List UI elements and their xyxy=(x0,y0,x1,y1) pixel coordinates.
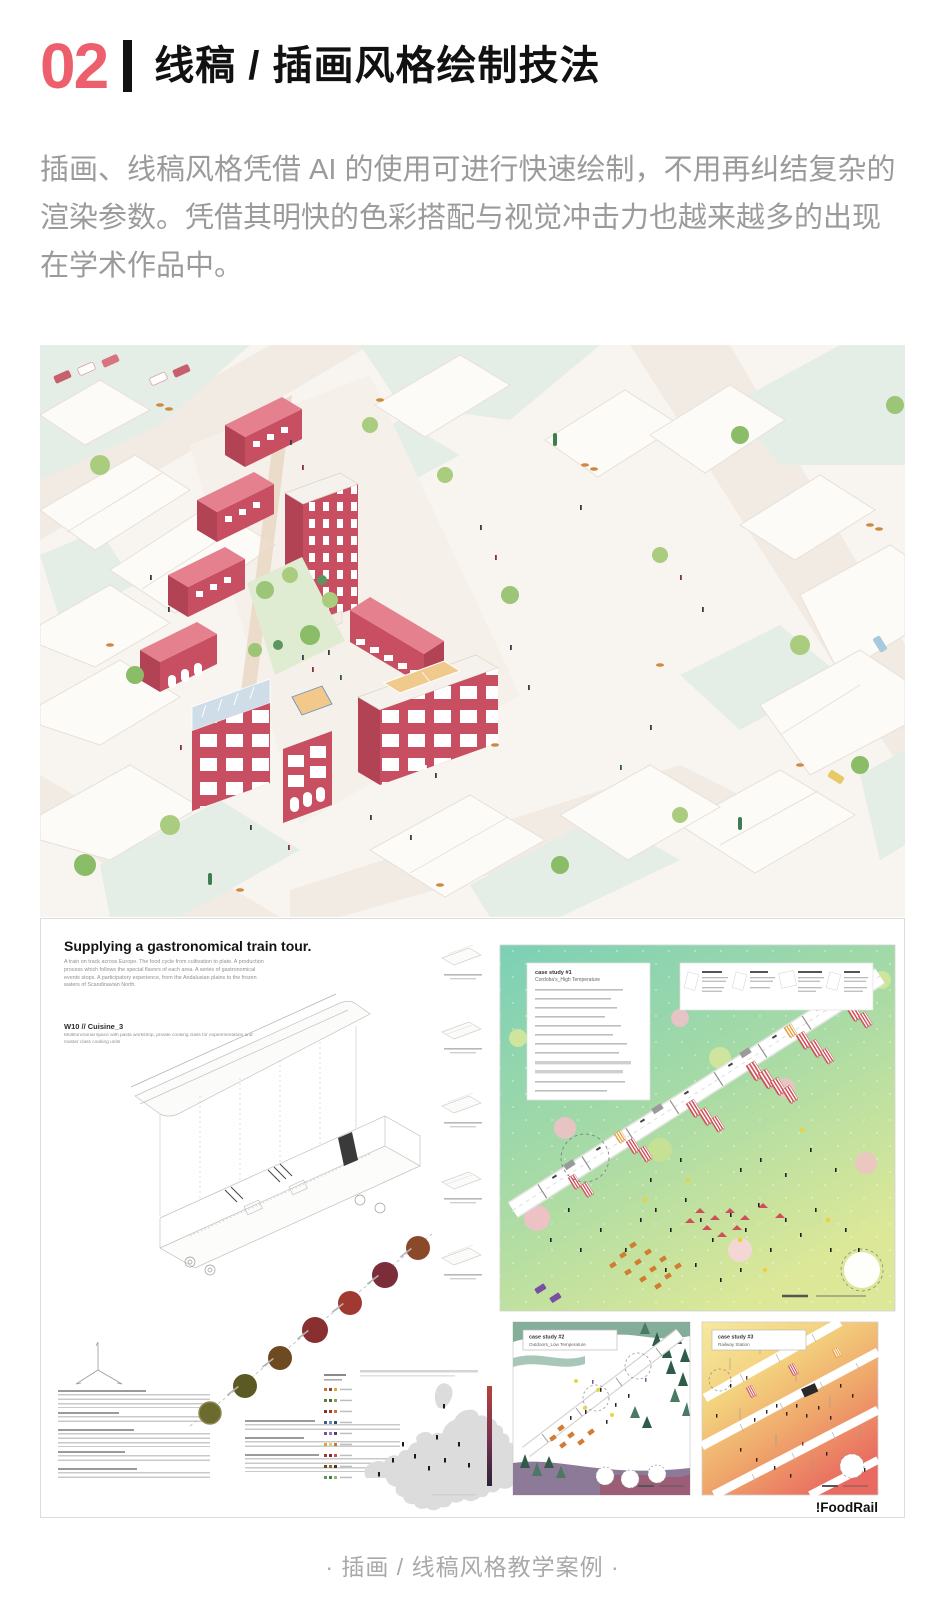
svg-text:case study #2: case study #2 xyxy=(529,1335,564,1341)
board-abstract: A train on track across Europe. The food… xyxy=(64,959,269,1005)
program-legend-strip xyxy=(680,963,873,1010)
image-caption: · 插画 / 线稿风格教学案例 · xyxy=(0,1548,945,1582)
case-study-3-label: case study #3 Railway Station xyxy=(712,1330,806,1350)
detail-circle-3 xyxy=(840,1454,864,1478)
board-title: Supplying a gastronomical train tour. xyxy=(64,938,311,954)
case-study-2-panel: case study #2 Outdoors_Low Temperature xyxy=(513,1322,690,1495)
header-divider xyxy=(123,40,132,92)
svg-text:Railway Station: Railway Station xyxy=(718,1342,750,1347)
notes-column-1 xyxy=(58,1390,210,1502)
project-logo: !FoodRail xyxy=(816,1500,878,1515)
notes-column-2 xyxy=(245,1420,400,1500)
section-title: 线稿 / 插画风格绘制技法 xyxy=(154,46,600,86)
hero-svg xyxy=(40,345,905,917)
svg-text:case study #3: case study #3 xyxy=(718,1335,753,1341)
case-study-1-id: case study #1 xyxy=(535,970,572,976)
section-header: 02 线稿 / 插画风格绘制技法 xyxy=(40,34,601,98)
module-desc: Multifunctional space with pasta worksho… xyxy=(64,1033,254,1053)
intro-paragraph: 插画、线稿风格凭借 AI 的使用可进行快速绘制，不用再纠结复杂的渲染参数。凭借其… xyxy=(40,146,900,290)
case-study-1-card: case study #1 Cordoba's_High Temperature xyxy=(527,963,650,1100)
case-study-3-panel: case study #3 Railway Station xyxy=(702,1322,878,1495)
case-study-2-label: case study #2 Outdoors_Low Temperature xyxy=(523,1330,617,1350)
foodrail-board[interactable]: Supplying a gastronomical train tour. A … xyxy=(40,918,905,1518)
module-label: W10 // Cuisine_3 xyxy=(64,1022,123,1031)
board-svg: Supplying a gastronomical train tour. A … xyxy=(40,918,905,1518)
detail-callout-fill xyxy=(844,1252,880,1288)
legend-color-scale xyxy=(487,1386,492,1486)
case-study-1-name: Cordoba's_High Temperature xyxy=(535,977,600,983)
hero-illustration[interactable] xyxy=(40,345,905,917)
case-study-1-panel: case study #1 Cordoba's_High Temperature xyxy=(500,945,895,1311)
section-number: 02 xyxy=(40,34,107,98)
svg-text:Outdoors_Low Temperature: Outdoors_Low Temperature xyxy=(529,1342,586,1347)
